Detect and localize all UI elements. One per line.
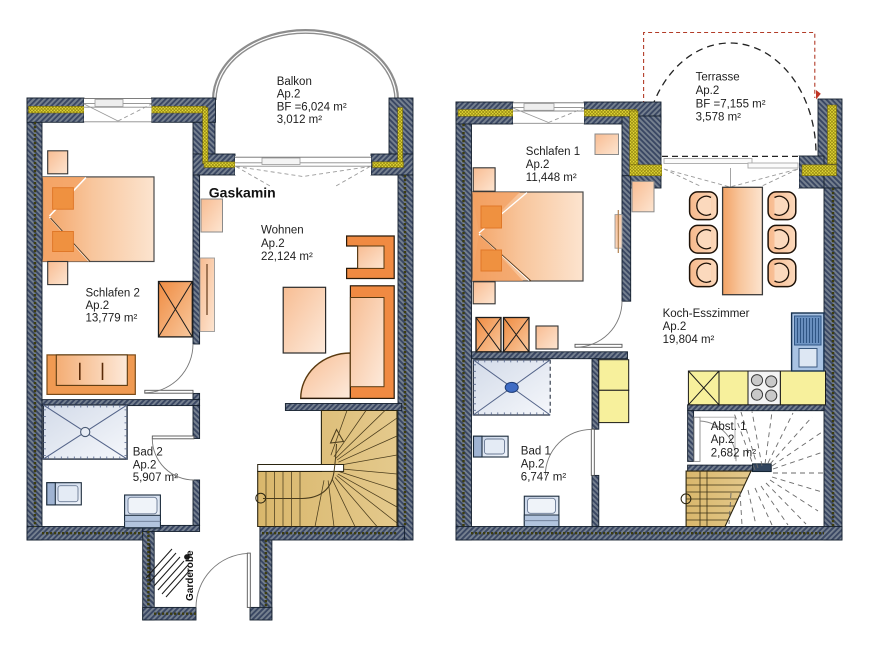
svg-text:Gaskamin: Gaskamin <box>209 185 276 201</box>
svg-text:Koch-Esszimmer: Koch-Esszimmer <box>663 308 750 320</box>
svg-text:Ap.2: Ap.2 <box>526 159 550 171</box>
svg-text:Garderobe: Garderobe <box>185 550 196 601</box>
svg-text:3,578 m²: 3,578 m² <box>696 112 742 124</box>
svg-text:Ap.2: Ap.2 <box>261 238 285 250</box>
svg-text:BF =7,155 m²: BF =7,155 m² <box>696 98 766 110</box>
svg-text:Balkon: Balkon <box>277 76 312 88</box>
svg-text:3,012 m²: 3,012 m² <box>277 114 323 126</box>
svg-text:Ap.2: Ap.2 <box>277 89 301 101</box>
svg-text:5,907 m²: 5,907 m² <box>133 472 179 484</box>
svg-text:Ap.2: Ap.2 <box>521 459 545 471</box>
svg-text:Ap.2: Ap.2 <box>133 459 157 471</box>
svg-text:Ap.2: Ap.2 <box>663 321 687 333</box>
svg-text:2,682 m²: 2,682 m² <box>711 448 757 460</box>
svg-text:19,804 m²: 19,804 m² <box>663 334 715 346</box>
svg-text:6,747 m²: 6,747 m² <box>521 472 567 484</box>
svg-text:11,448 m²: 11,448 m² <box>526 172 577 184</box>
svg-text:Bad 2: Bad 2 <box>133 447 163 459</box>
svg-text:Schlafen 1: Schlafen 1 <box>526 146 580 158</box>
svg-text:Bad 1: Bad 1 <box>521 445 551 457</box>
svg-text:Schlafen 2: Schlafen 2 <box>86 288 140 300</box>
svg-text:Wohnen: Wohnen <box>261 224 304 236</box>
svg-text:22,124 m²: 22,124 m² <box>261 251 313 263</box>
svg-text:BF =6,024 m²: BF =6,024 m² <box>277 101 347 113</box>
svg-text:Terrasse: Terrasse <box>696 71 740 83</box>
svg-text:Ap.2: Ap.2 <box>696 85 720 97</box>
svg-text:13,779 m²: 13,779 m² <box>86 312 138 324</box>
svg-text:Ap.2: Ap.2 <box>86 300 110 312</box>
svg-text:Ap.2: Ap.2 <box>711 434 735 446</box>
svg-text:Abst. 1: Abst. 1 <box>711 421 747 433</box>
